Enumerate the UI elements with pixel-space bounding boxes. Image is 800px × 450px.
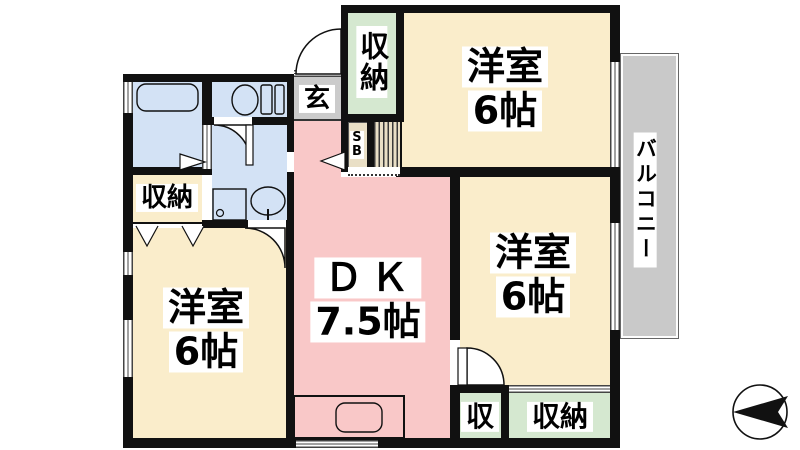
door-swing-arc xyxy=(467,348,504,385)
door-swing-arc xyxy=(245,228,285,268)
label-dining-kitchen: ＤＫ7.5帖 xyxy=(310,257,425,342)
door-leaf xyxy=(246,125,253,165)
bathtub-icon xyxy=(137,84,198,111)
folding-door-mark xyxy=(182,226,204,246)
label-entrance: 玄 xyxy=(299,85,335,113)
toilet-icon xyxy=(232,85,258,115)
folding-door-mark xyxy=(136,226,158,246)
label-room-top-right: 洋室6帖 xyxy=(462,46,548,131)
label-storage-bottom: 収納 xyxy=(527,402,593,432)
label-closet-top: 収納 xyxy=(356,26,387,98)
door-direction-triangle xyxy=(321,152,345,170)
door-leaf xyxy=(458,348,467,385)
label-closet-left: 収納 xyxy=(136,184,198,212)
door-direction-triangle xyxy=(180,154,205,170)
toilet-tank xyxy=(261,85,272,114)
floor-plan: 洋室6帖 洋室6帖 洋室6帖 ＤＫ7.5帖 収納 収納 収 収納 玄 SB バル… xyxy=(0,0,800,450)
drain-mark xyxy=(217,210,224,217)
door-swing-arc xyxy=(296,29,341,74)
door-swing-arc xyxy=(214,125,250,161)
toilet-tank xyxy=(275,85,284,114)
label-room-bottom-left: 洋室6帖 xyxy=(163,287,249,372)
label-shoe-box: SB xyxy=(350,131,364,159)
kitchen-sink-icon xyxy=(336,403,382,432)
compass-north-icon xyxy=(733,385,788,439)
label-balcony: バルコニー xyxy=(634,133,657,268)
label-room-middle-right: 洋室6帖 xyxy=(490,232,576,317)
fixtures-layer xyxy=(0,0,800,450)
label-storage-small: 収 xyxy=(461,402,499,432)
